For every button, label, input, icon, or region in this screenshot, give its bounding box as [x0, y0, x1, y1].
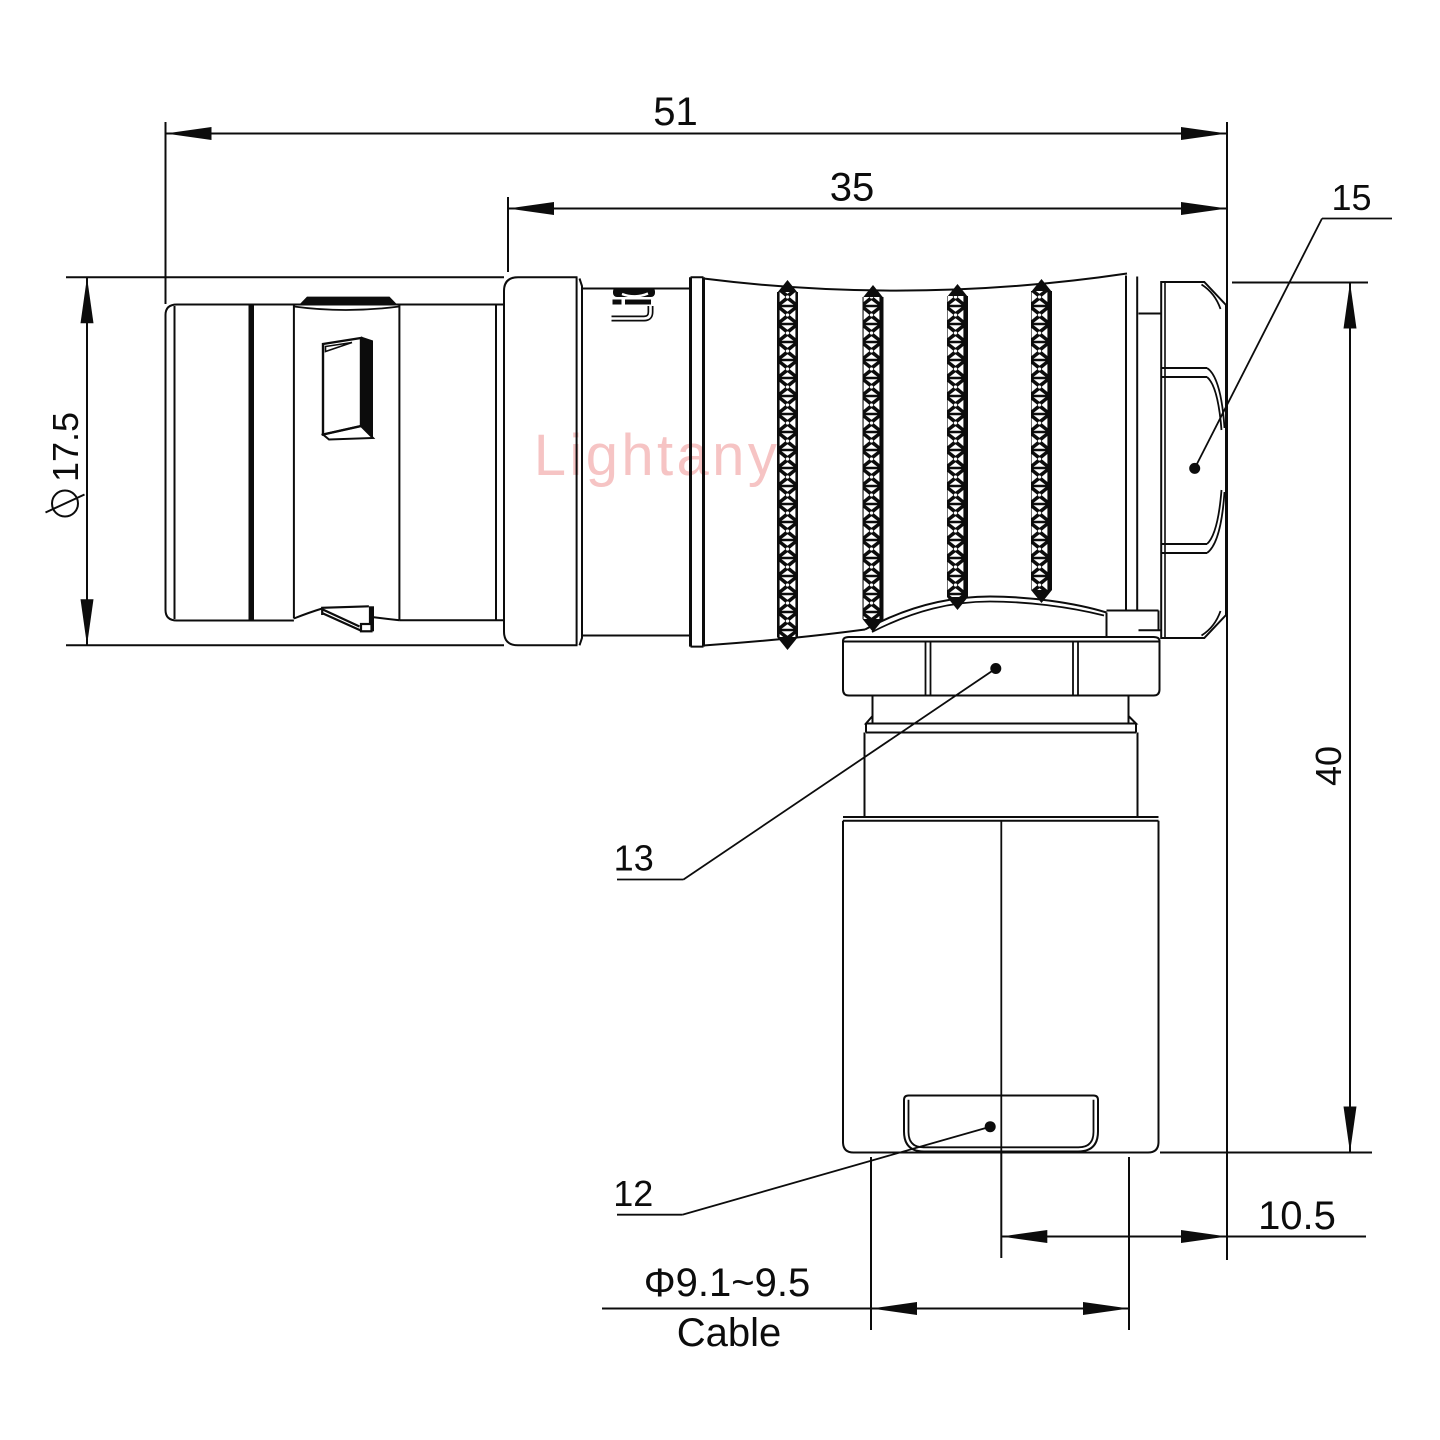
svg-text:17.5: 17.5 [45, 412, 86, 482]
svg-text:10.5: 10.5 [1258, 1194, 1336, 1238]
svg-text:Φ9.1~9.5: Φ9.1~9.5 [644, 1261, 810, 1305]
svg-text:Cable: Cable [677, 1311, 782, 1355]
svg-text:35: 35 [830, 166, 875, 210]
svg-text:13: 13 [614, 838, 654, 879]
svg-text:Lightany: Lightany [534, 423, 780, 488]
svg-text:12: 12 [613, 1173, 653, 1214]
svg-text:40: 40 [1308, 746, 1349, 786]
svg-text:51: 51 [653, 90, 698, 134]
svg-text:15: 15 [1331, 177, 1371, 218]
